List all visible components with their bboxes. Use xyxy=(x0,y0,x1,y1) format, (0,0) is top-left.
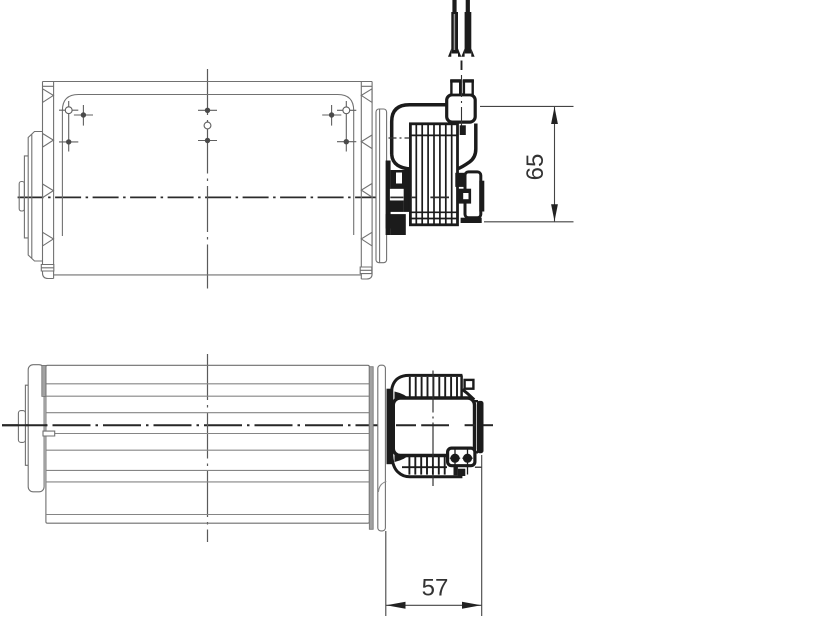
svg-text:57: 57 xyxy=(422,574,449,601)
svg-text:65: 65 xyxy=(522,154,549,181)
